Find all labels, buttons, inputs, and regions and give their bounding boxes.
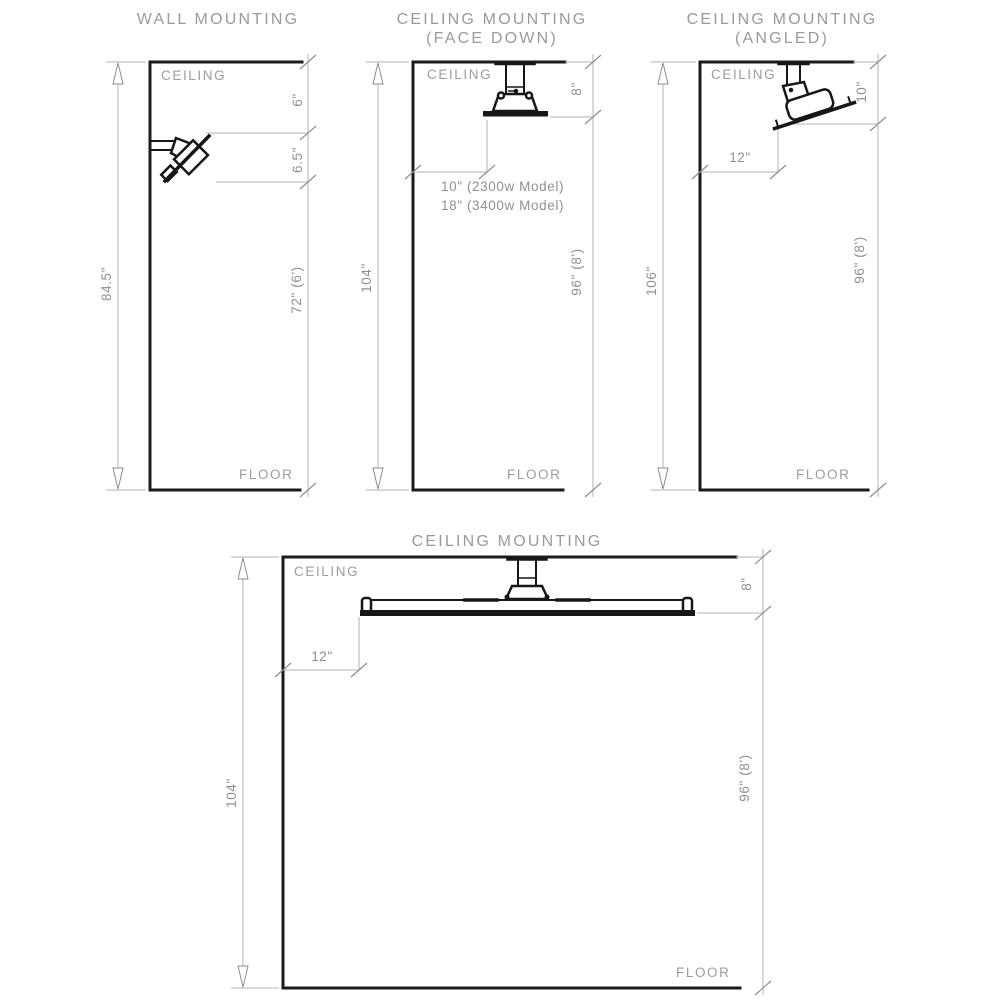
unit-to-floor-value: 96" (8')	[852, 236, 867, 283]
arrow-down-icon	[238, 966, 248, 987]
panel-left-cap	[362, 598, 371, 612]
arrow-down-icon	[373, 468, 383, 489]
dim-right-stack: 6" 6.5" 72" (6')	[206, 54, 316, 497]
total-height-value: 104"	[359, 263, 374, 293]
ceiling-to-unit-value: 10"	[854, 81, 869, 103]
panel-right-cap	[683, 598, 692, 612]
room-outline	[150, 62, 302, 490]
pivot-bolt	[514, 89, 519, 94]
ceiling-face-down-diagram: CEILING MOUNTING (FACE DOWN) CEILING FLO…	[359, 11, 601, 497]
angled-title-line1: CEILING MOUNTING	[687, 11, 878, 28]
dim-right-stack: 8" 96" (8')	[550, 54, 601, 497]
room-outline	[283, 557, 740, 988]
ceiling-to-unit-value: 8"	[569, 82, 584, 96]
wall-clearance-3400w-value: 18" (3400w Model)	[441, 198, 564, 213]
ceiling-label: CEILING	[427, 67, 492, 82]
dim-wall-clearance: 12"	[692, 128, 786, 179]
right-knob	[526, 93, 532, 99]
angled-title-line2: (ANGLED)	[735, 30, 829, 47]
face-down-title-line2: (FACE DOWN)	[426, 30, 558, 47]
total-height-value: 84.5"	[99, 267, 114, 301]
dim-wall-clearance: 12"	[275, 617, 367, 677]
dim-total-height: 104"	[224, 557, 279, 988]
wall-mounting-title: WALL MOUNTING	[137, 11, 300, 28]
wall-clearance-value: 12"	[729, 150, 751, 165]
floor-label: FLOOR	[507, 467, 562, 482]
wall-clearance-2300w-value: 10" (2300w Model)	[441, 179, 564, 194]
wall-clearance-value: 12"	[311, 649, 333, 664]
arrow-down-icon	[658, 468, 668, 489]
left-bolt	[505, 595, 510, 600]
ceiling-heater-angled-drawing	[768, 64, 855, 129]
ceiling-label: CEILING	[161, 68, 226, 83]
ceiling-label: CEILING	[711, 67, 776, 82]
face-down-title-line1: CEILING MOUNTING	[397, 11, 588, 28]
ceiling-angled-diagram: CEILING MOUNTING (ANGLED) CEILING FLOOR …	[644, 11, 886, 497]
ceiling-heater-face-down-drawing	[483, 64, 548, 117]
dim-total-height: 104"	[359, 62, 409, 490]
room-outline	[413, 62, 565, 490]
mount-bracket	[506, 586, 548, 599]
ceiling-to-unit-value: 8"	[739, 577, 754, 591]
arrow-up-icon	[113, 63, 123, 84]
floor-label: FLOOR	[239, 467, 294, 482]
total-height-value: 106"	[644, 266, 659, 296]
unit-height-value: 6.5"	[290, 147, 305, 173]
dim-total-height: 84.5"	[99, 62, 146, 490]
wall-heater-drawing	[152, 136, 209, 181]
panel-face-plate	[360, 610, 695, 616]
dim-wall-clearance: 10" (2300w Model) 18" (3400w Model)	[405, 120, 564, 213]
ceiling-panel-diagram: CEILING MOUNTING CEILING FLOOR 104" 8" 9…	[224, 533, 771, 995]
ceiling-label: CEILING	[294, 564, 359, 579]
mounting-instructions-sheet: WALL MOUNTING CEILING FLOOR 84.5" 6" 6.5…	[0, 0, 1000, 1000]
unit-to-floor-value: 96" (8')	[569, 248, 584, 295]
unit-to-floor-value: 72" (6')	[289, 266, 304, 313]
arrow-up-icon	[373, 63, 383, 84]
pivot-bolt	[789, 88, 794, 93]
panel-title: CEILING MOUNTING	[412, 533, 603, 550]
arrow-down-icon	[113, 468, 123, 489]
right-bolt	[545, 595, 550, 600]
dim-right-stack: 8" 96" (8')	[697, 549, 771, 995]
floor-label: FLOOR	[676, 965, 731, 980]
floor-label: FLOOR	[796, 467, 851, 482]
unit-to-floor-value: 96" (8')	[737, 754, 752, 801]
dim-total-height: 106"	[644, 62, 696, 490]
wall-mounting-diagram: WALL MOUNTING CEILING FLOOR 84.5" 6" 6.5…	[99, 11, 316, 497]
ceiling-panel-heater-drawing	[360, 559, 695, 616]
left-knob	[498, 93, 504, 99]
heater-face-plate	[483, 111, 548, 117]
arrow-up-icon	[658, 63, 668, 84]
arrow-up-icon	[238, 558, 248, 579]
ceiling-to-unit-value: 6"	[290, 93, 305, 107]
total-height-value: 104"	[224, 778, 239, 808]
